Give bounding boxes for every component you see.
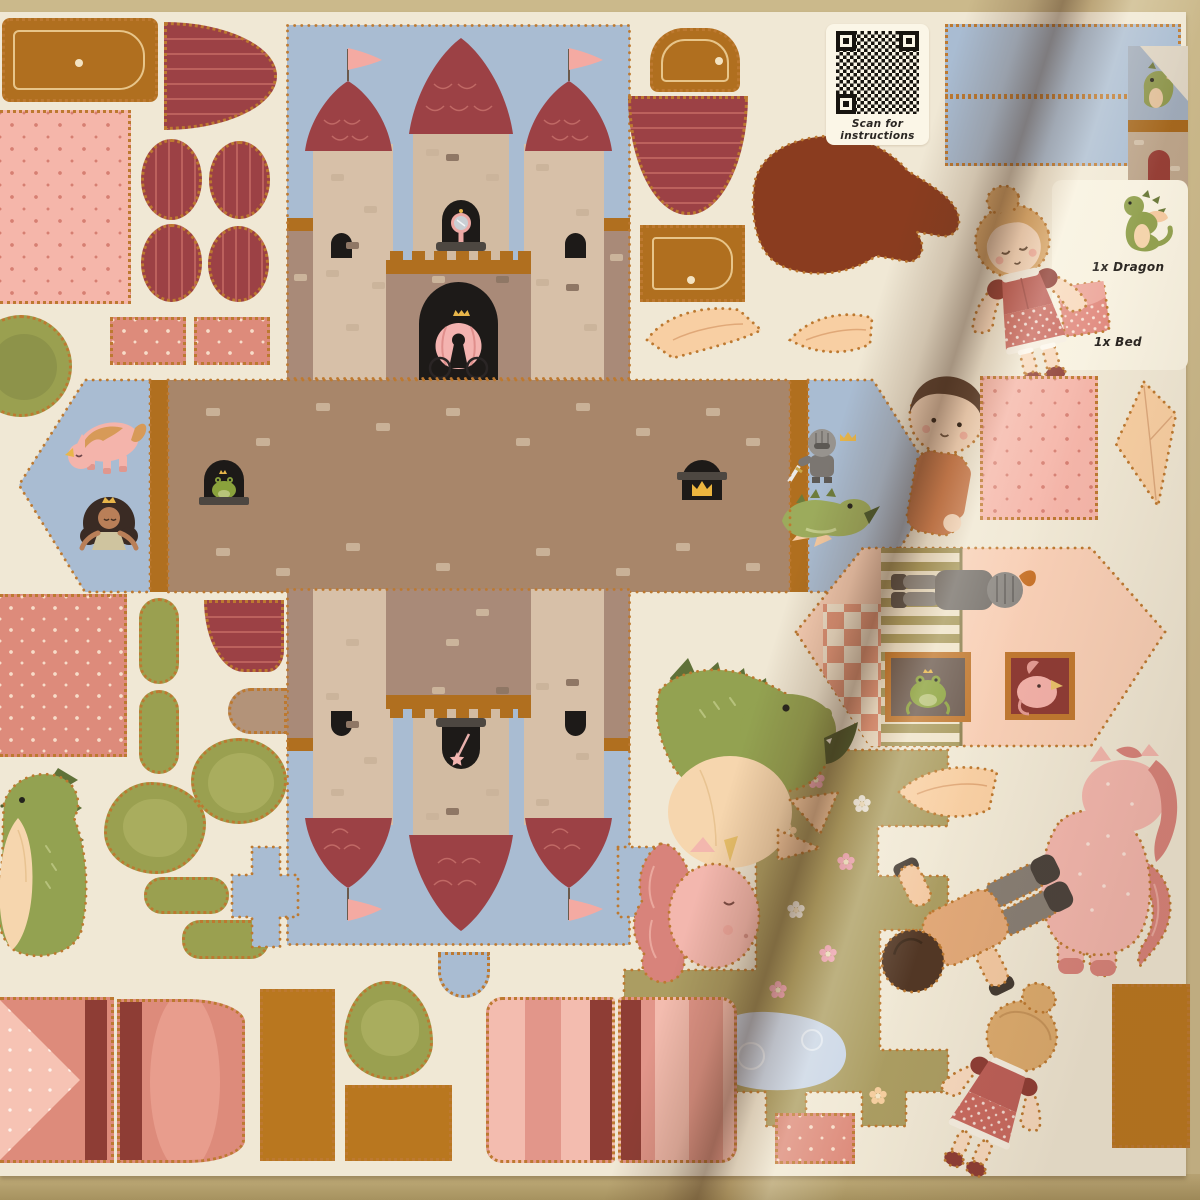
green-circle-piece bbox=[191, 738, 287, 824]
door-plate-piece-a bbox=[2, 18, 158, 102]
unicorn-picture-frame bbox=[1005, 652, 1075, 720]
qr-finder-tr bbox=[899, 31, 919, 51]
pink-pattern-square-b bbox=[980, 376, 1098, 520]
green-capsule-piece bbox=[139, 690, 179, 774]
qr-card: Scan for instructions bbox=[826, 24, 929, 145]
door-knob-dot bbox=[75, 59, 83, 67]
skirt-piece-a bbox=[486, 997, 615, 1163]
door-knob-dot bbox=[687, 276, 695, 284]
qr-finder-bl bbox=[836, 94, 856, 114]
princess-doll-back bbox=[933, 978, 1108, 1200]
folded-corner-scene bbox=[1128, 46, 1188, 192]
pink-pattern-square-dark bbox=[0, 594, 127, 757]
roof-oval-piece bbox=[209, 141, 270, 219]
curtain-piece-b bbox=[117, 999, 245, 1163]
dragon-wing-piece bbox=[643, 300, 765, 364]
legend-dragon-icon bbox=[1114, 190, 1172, 258]
blue-plus-piece bbox=[230, 845, 302, 949]
castle-front-panel bbox=[286, 24, 631, 380]
dragon-wing-piece bbox=[893, 758, 1005, 826]
roof-oval-piece bbox=[208, 226, 269, 302]
castle-back-panel bbox=[286, 588, 631, 946]
brown-rect-piece bbox=[260, 989, 335, 1161]
heart-rect-piece bbox=[110, 317, 186, 365]
roof-oval-piece bbox=[141, 224, 202, 302]
dragon-body-rust-piece bbox=[748, 126, 963, 296]
skirt-piece-b bbox=[618, 997, 737, 1163]
qr-finder-tl bbox=[836, 31, 856, 51]
door-knob-dot bbox=[715, 57, 723, 65]
dragon-wing-piece bbox=[786, 304, 876, 360]
heart-rect-piece bbox=[775, 1113, 855, 1164]
qr-caption: Scan for instructions bbox=[826, 118, 929, 142]
qr-code bbox=[836, 31, 919, 114]
legend-bed-label: 1x Bed bbox=[1094, 335, 1174, 349]
roof-oval-piece bbox=[141, 139, 202, 220]
unicorn-head-piece bbox=[632, 836, 762, 986]
pink-pattern-square-a bbox=[0, 110, 131, 304]
big-dragon-left bbox=[0, 760, 112, 965]
princess-doll-front bbox=[946, 178, 1096, 388]
brown-rect-piece bbox=[345, 1085, 452, 1161]
dragon-wing-piece-kite bbox=[1110, 380, 1180, 510]
door-plate-piece-b bbox=[640, 225, 745, 302]
heart-rect-piece bbox=[194, 317, 270, 365]
fabric-panel-photo: Scan for instructions bbox=[0, 0, 1200, 1200]
frog-picture-frame bbox=[885, 652, 971, 722]
door-plate-piece-c bbox=[650, 28, 740, 92]
brown-rect-piece bbox=[1112, 984, 1190, 1148]
curtain-piece-a bbox=[0, 997, 114, 1163]
tan-balcony-piece bbox=[228, 688, 287, 734]
green-capsule-piece bbox=[139, 598, 179, 684]
green-rounded-rect-piece bbox=[144, 877, 229, 914]
